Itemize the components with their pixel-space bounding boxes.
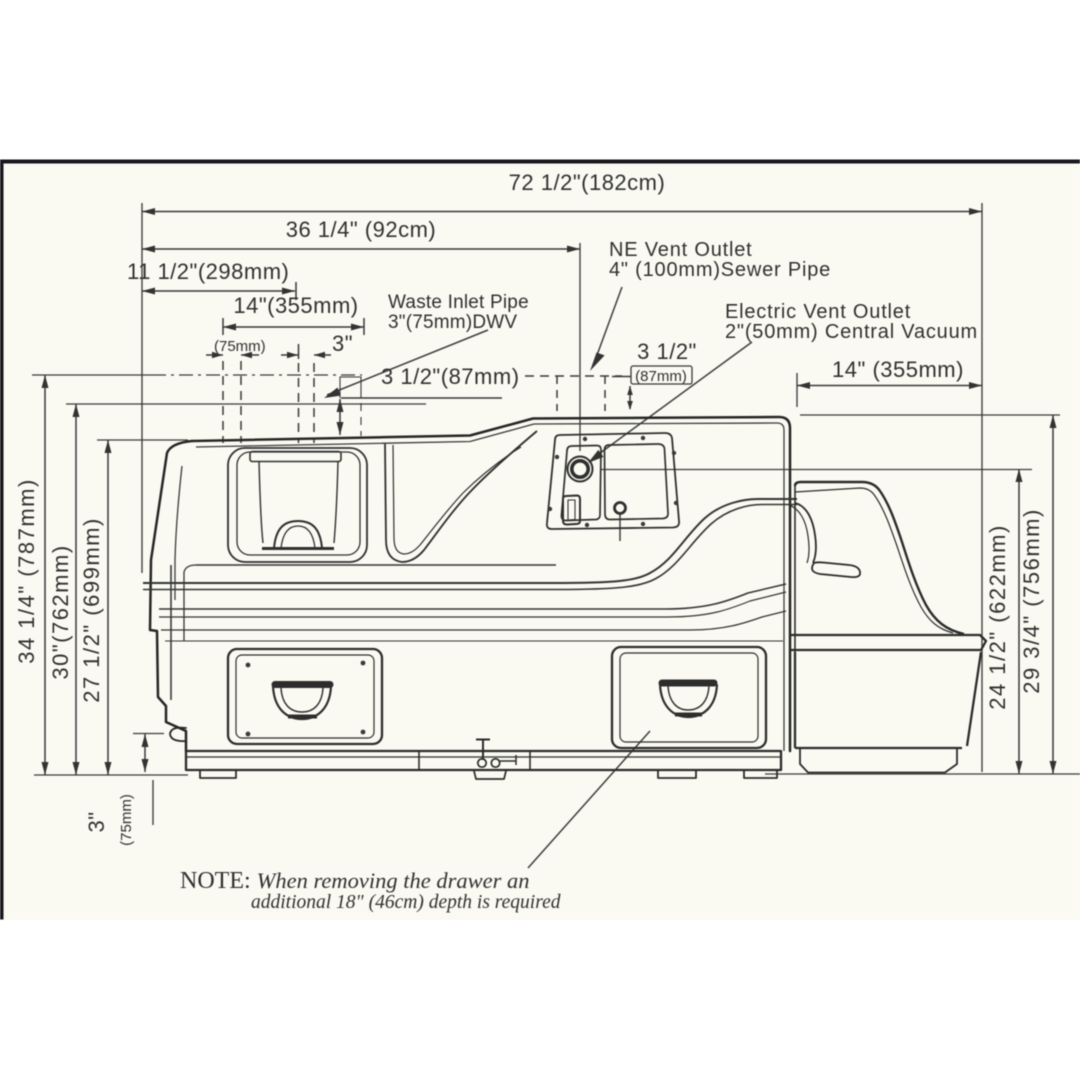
svg-text:(75mm): (75mm) [118,794,135,846]
svg-text:3"(75mm)DWV: 3"(75mm)DWV [388,312,517,333]
svg-text:4" (100mm)Sewer Pipe: 4" (100mm)Sewer Pipe [609,259,831,281]
svg-text:14"(355mm): 14"(355mm) [233,293,358,318]
svg-text:36 1/4" (92cm): 36 1/4" (92cm) [286,217,437,242]
svg-text:(87mm): (87mm) [635,368,687,385]
svg-text:NE Vent Outlet: NE Vent Outlet [609,239,753,261]
svg-text:11 1/2"(298mm): 11 1/2"(298mm) [127,259,289,284]
svg-text:34 1/4" (787mm): 34 1/4" (787mm) [14,478,39,664]
svg-text:NOTE: When removing the drawer: NOTE: When removing the drawer an [180,868,530,894]
svg-text:27 1/2" (699mm): 27 1/2" (699mm) [79,517,104,703]
svg-text:Electric Vent Outlet: Electric Vent Outlet [725,301,911,323]
svg-text:(75mm): (75mm) [214,338,266,355]
svg-text:Waste Inlet Pipe: Waste Inlet Pipe [388,292,529,313]
svg-text:14" (355mm): 14" (355mm) [832,357,964,382]
svg-text:29 3/4" (756mm): 29 3/4" (756mm) [1019,508,1044,694]
svg-text:3 1/2": 3 1/2" [637,339,697,364]
svg-text:3": 3" [84,811,109,832]
svg-text:3 1/2"(87mm): 3 1/2"(87mm) [381,364,520,389]
svg-text:72 1/2"(182cm): 72 1/2"(182cm) [509,170,666,195]
svg-text:24 1/2" (622mm): 24 1/2" (622mm) [985,524,1010,710]
svg-text:3": 3" [332,331,353,356]
svg-text:additional 18" (46cm) depth is: additional 18" (46cm) depth is required [251,892,561,913]
svg-text:30"(762mm): 30"(762mm) [48,544,73,679]
svg-text:2"(50mm) Central Vacuum: 2"(50mm) Central Vacuum [725,321,978,343]
